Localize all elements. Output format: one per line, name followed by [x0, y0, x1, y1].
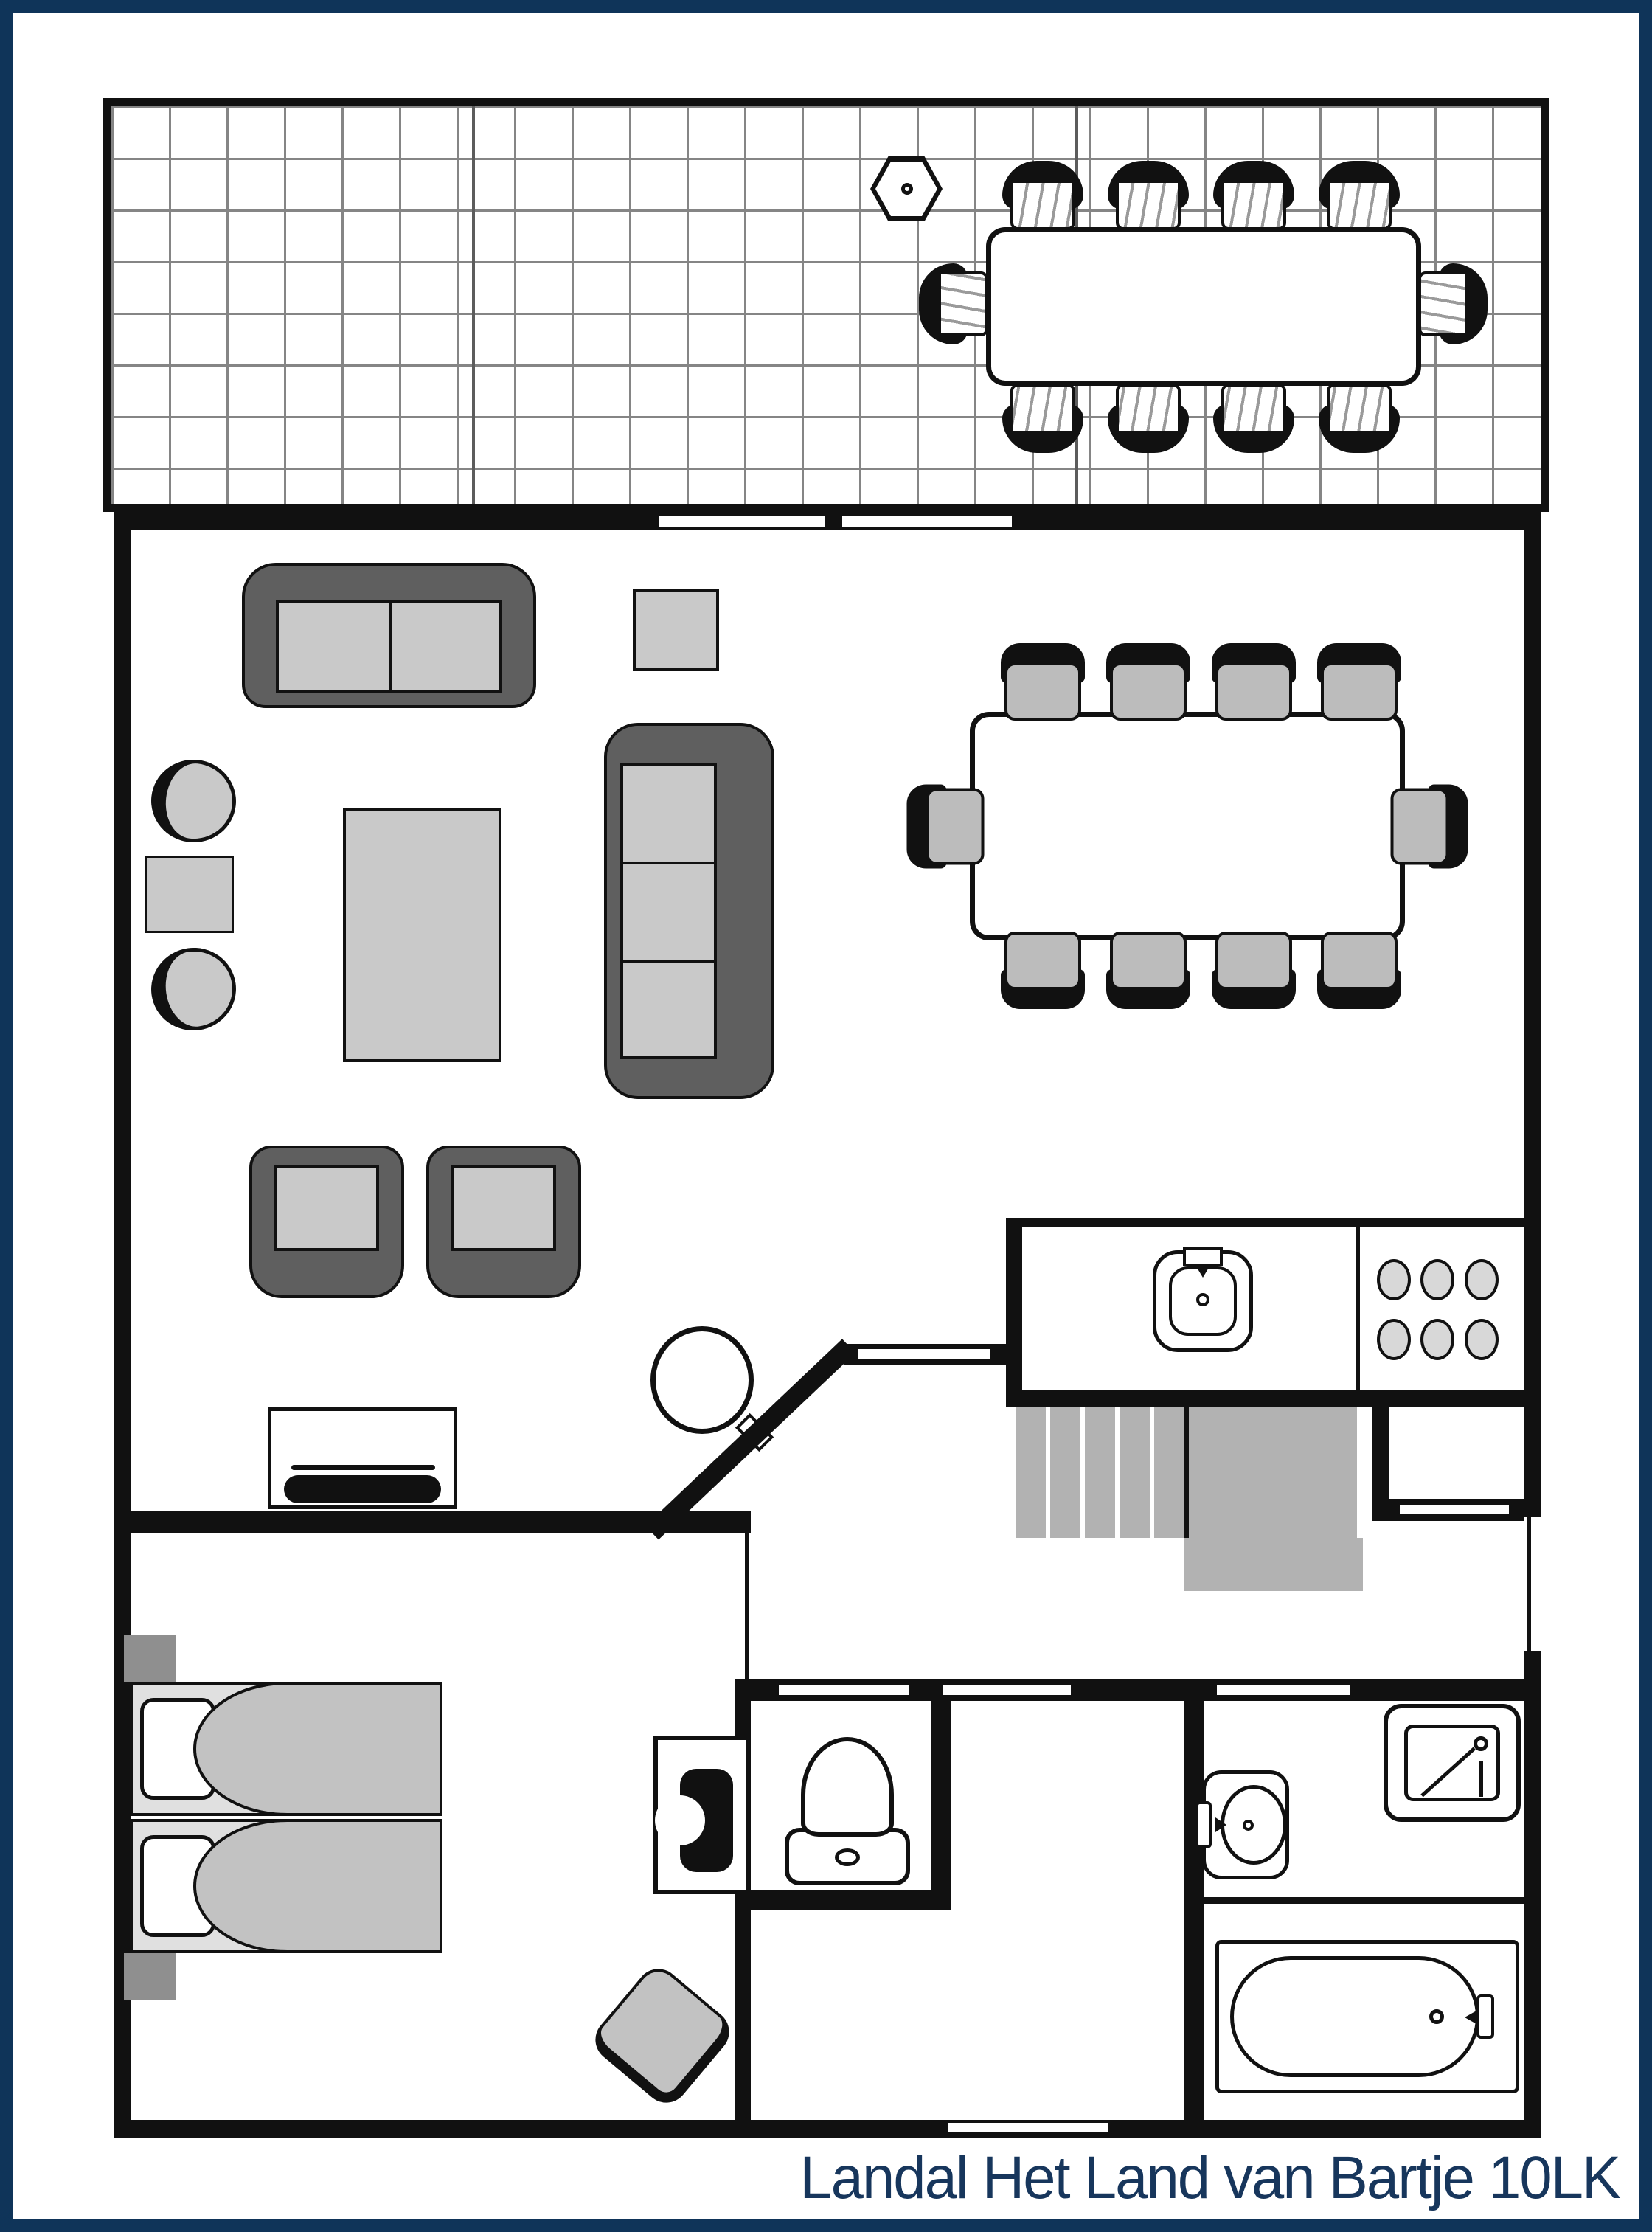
- page-frame: [0, 0, 1652, 2232]
- floorplan-page: Landal Het Land van Bartje 10LK: [0, 0, 1652, 2232]
